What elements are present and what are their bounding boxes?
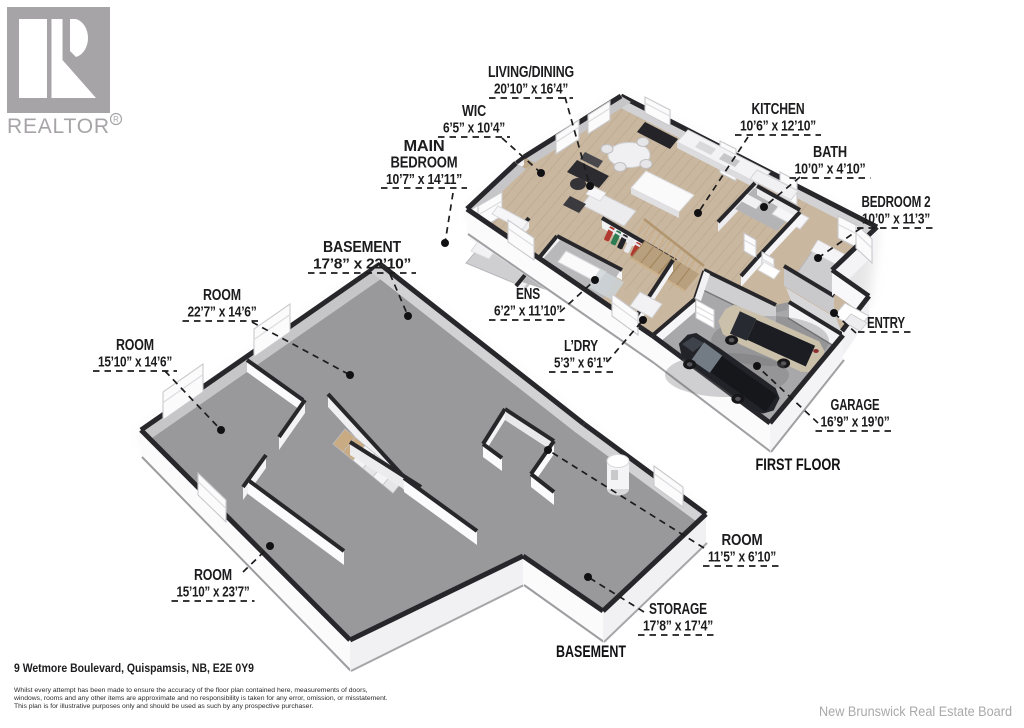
- svg-text:L’DRY: L’DRY: [564, 338, 599, 355]
- svg-text:ROOM: ROOM: [203, 287, 241, 304]
- svg-text:FIRST FLOOR: FIRST FLOOR: [756, 455, 841, 474]
- svg-text:R: R: [113, 115, 119, 124]
- svg-text:9 Wetmore Boulevard, Quispamsi: 9 Wetmore Boulevard, Quispamsis, NB, E2E…: [14, 661, 254, 675]
- svg-text:15’10” x 14’6”: 15’10” x 14’6”: [98, 355, 172, 371]
- svg-text:10’6” x 12’10”: 10’6” x 12’10”: [740, 119, 816, 135]
- svg-text:15’10” x 23’7”: 15’10” x 23’7”: [177, 585, 250, 601]
- svg-text:6’2” x 11’10”: 6’2” x 11’10”: [494, 304, 562, 320]
- svg-text:MAIN: MAIN: [404, 138, 445, 155]
- svg-text:ENS: ENS: [516, 286, 540, 303]
- svg-text:ROOM: ROOM: [722, 532, 763, 549]
- svg-text:10’0” x 4’10”: 10’0” x 4’10”: [795, 162, 866, 178]
- svg-text:ENTRY: ENTRY: [867, 315, 906, 332]
- svg-text:6’5” x 10’4”: 6’5” x 10’4”: [443, 121, 505, 137]
- svg-text:11’5” x 6’10”: 11’5” x 6’10”: [708, 550, 776, 566]
- svg-text:STORAGE: STORAGE: [649, 601, 707, 618]
- svg-text:BATH: BATH: [813, 144, 847, 161]
- svg-text:17’8” x 17’4”: 17’8” x 17’4”: [643, 619, 713, 635]
- svg-text:This plan is for illustrative: This plan is for illustrative purposes o…: [14, 703, 313, 710]
- svg-text:New Brunswick Real Estate Boar: New Brunswick Real Estate Board: [819, 704, 1012, 719]
- svg-text:BASEMENT: BASEMENT: [556, 642, 626, 661]
- svg-text:ROOM: ROOM: [116, 337, 154, 354]
- svg-text:20’10” x 16’4”: 20’10” x 16’4”: [494, 82, 568, 98]
- svg-text:KITCHEN: KITCHEN: [752, 101, 805, 118]
- svg-text:17’8” x 22’10”: 17’8” x 22’10”: [313, 257, 411, 273]
- svg-text:5’3” x 6’1”: 5’3” x 6’1”: [554, 356, 608, 372]
- svg-text:10’7” x 14’11”: 10’7” x 14’11”: [386, 172, 462, 188]
- svg-text:BEDROOM: BEDROOM: [391, 155, 458, 172]
- svg-text:Whilst every attempt has been: Whilst every attempt has been made to en…: [14, 687, 368, 694]
- svg-text:BEDROOM 2: BEDROOM 2: [862, 194, 931, 211]
- svg-text:BASEMENT: BASEMENT: [323, 239, 402, 256]
- svg-text:windows, rooms and any other i: windows, rooms and any other items are a…: [13, 695, 388, 702]
- svg-text:REALTOR: REALTOR: [7, 115, 110, 138]
- svg-text:22’7” x 14’6”: 22’7” x 14’6”: [188, 305, 257, 321]
- svg-text:WIC: WIC: [462, 103, 486, 120]
- svg-text:LIVING/DINING: LIVING/DINING: [488, 64, 574, 81]
- svg-text:16’9” x 19’0”: 16’9” x 19’0”: [821, 415, 890, 431]
- svg-text:10’0” x 11’3”: 10’0” x 11’3”: [862, 212, 930, 228]
- svg-text:GARAGE: GARAGE: [831, 397, 880, 414]
- svg-text:ROOM: ROOM: [194, 567, 232, 584]
